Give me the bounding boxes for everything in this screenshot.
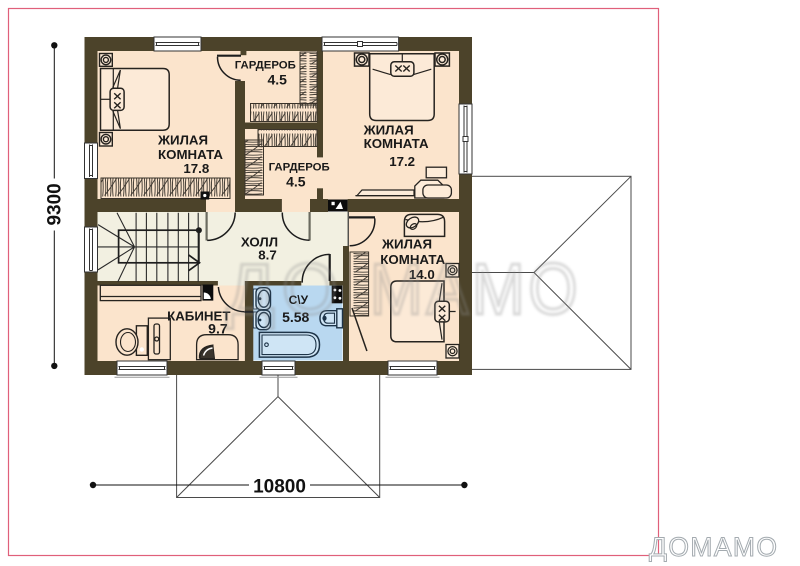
svg-text:ГАРДЕРОБ: ГАРДЕРОБ bbox=[235, 59, 296, 71]
svg-text:17.8: 17.8 bbox=[183, 161, 209, 176]
svg-text:МАМО: МАМО bbox=[370, 250, 581, 330]
svg-text:КОМНАТА: КОМНАТА bbox=[364, 136, 429, 151]
svg-text:17.2: 17.2 bbox=[389, 154, 415, 169]
svg-text:ЖИЛАЯ: ЖИЛАЯ bbox=[157, 133, 208, 148]
svg-text:4.5: 4.5 bbox=[267, 72, 287, 88]
svg-text:КОМНАТА: КОМНАТА bbox=[158, 147, 223, 162]
svg-text:9.7: 9.7 bbox=[208, 320, 228, 336]
svg-text:10800: 10800 bbox=[253, 477, 306, 498]
svg-text:ДОМАМО: ДОМАМО bbox=[649, 532, 778, 562]
svg-text:ДО: ДО bbox=[226, 250, 345, 330]
svg-text:9300: 9300 bbox=[44, 183, 65, 225]
svg-text:4.5: 4.5 bbox=[286, 174, 306, 190]
svg-text:ГАРДЕРОБ: ГАРДЕРОБ bbox=[269, 162, 330, 174]
